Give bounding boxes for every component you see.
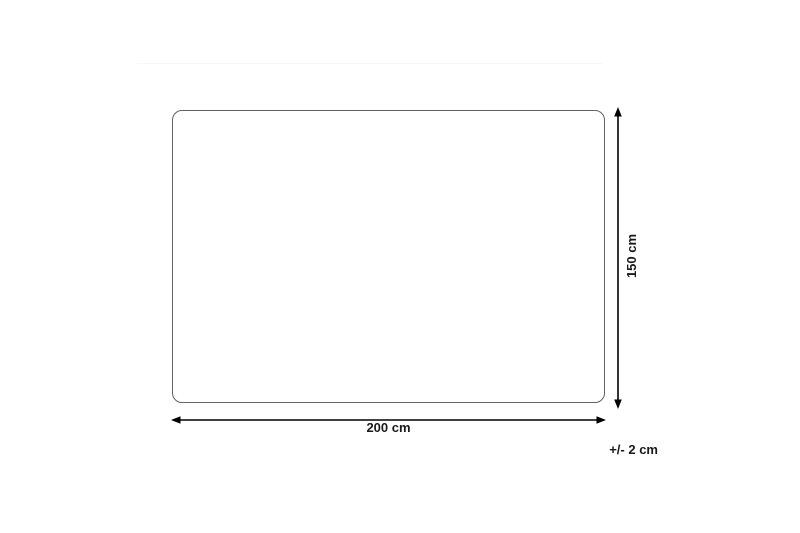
tolerance-label: +/- 2 cm bbox=[566, 443, 658, 457]
height-dimension-label: 150 cm bbox=[625, 226, 639, 286]
dimension-diagram: 150 cm 200 cm +/- 2 cm bbox=[0, 0, 800, 533]
height-arrow bbox=[614, 107, 622, 409]
faint-divider bbox=[137, 63, 602, 64]
product-outline-rectangle bbox=[172, 110, 605, 403]
width-dimension-label: 200 cm bbox=[172, 421, 605, 435]
